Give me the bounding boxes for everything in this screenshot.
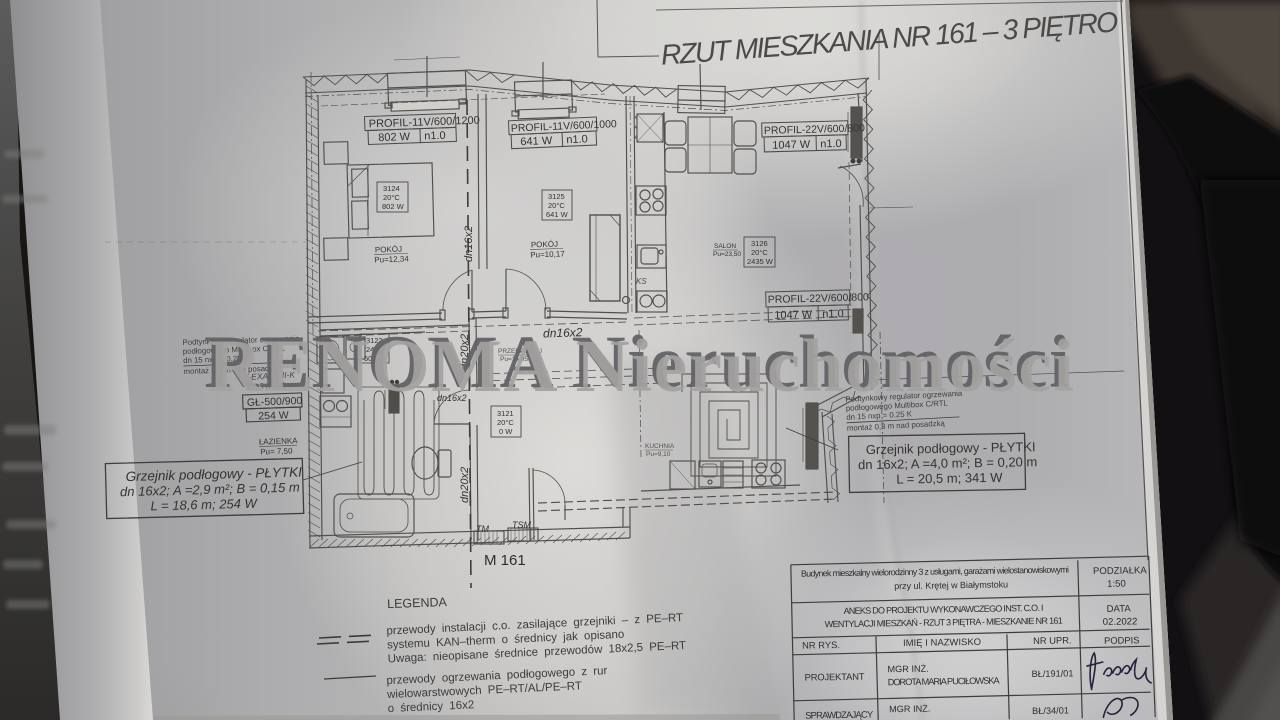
- svg-text:PODZIAŁKA: PODZIAŁKA: [1093, 565, 1148, 577]
- svg-text:DATA: DATA: [1106, 603, 1131, 614]
- svg-text:dn16x2: dn16x2: [463, 226, 475, 262]
- svg-text:M 161: M 161: [484, 552, 526, 569]
- svg-text:KUCHNIA: KUCHNIA: [645, 443, 675, 450]
- svg-text:Pu=9,10: Pu=9,10: [646, 451, 671, 458]
- svg-text:SPRAWDZAJĄCY: SPRAWDZAJĄCY: [805, 709, 874, 720]
- svg-text:1047 W: 1047 W: [774, 309, 813, 322]
- svg-text:3124: 3124: [383, 184, 400, 193]
- svg-text:BŁ/34/01: BŁ/34/01: [1032, 705, 1069, 716]
- svg-text:Pu=23,50: Pu=23,50: [713, 251, 741, 258]
- svg-text:1047 W: 1047 W: [772, 139, 811, 152]
- svg-text:POKÓJ: POKÓJ: [531, 240, 558, 250]
- svg-text:20°C: 20°C: [497, 418, 514, 427]
- svg-text:20°C: 20°C: [751, 248, 768, 257]
- svg-text:802 W: 802 W: [378, 131, 411, 144]
- svg-text:NR UPR.: NR UPR.: [1033, 634, 1072, 646]
- svg-text:RENOMA Nieruchomości: RENOMA Nieruchomości: [208, 325, 1074, 408]
- svg-text:20°C: 20°C: [383, 193, 400, 202]
- svg-text:TM: TM: [476, 524, 489, 534]
- svg-text:0 W: 0 W: [499, 427, 513, 436]
- svg-text:Pu= 7,50: Pu= 7,50: [260, 446, 293, 456]
- svg-text:n1.0: n1.0: [820, 138, 842, 151]
- svg-text:641 W: 641 W: [520, 135, 553, 148]
- svg-text:254 W: 254 W: [258, 409, 289, 422]
- svg-text:BŁ/191/01: BŁ/191/01: [1031, 668, 1073, 679]
- svg-text:2435 W: 2435 W: [747, 257, 774, 266]
- svg-text:DOROTA MARIA PUCIŁOWSKA: DOROTA MARIA PUCIŁOWSKA: [888, 676, 1001, 688]
- svg-text:3126: 3126: [751, 239, 768, 248]
- svg-text:PODPIS: PODPIS: [1104, 634, 1140, 646]
- svg-text:*: *: [634, 114, 638, 124]
- svg-text:802 W: 802 W: [382, 202, 405, 211]
- svg-text:Pu=12,34: Pu=12,34: [374, 254, 409, 264]
- svg-text:dn 16x2; A =4,0 m²; B = 0,20 m: dn 16x2; A =4,0 m²; B = 0,20 m: [858, 454, 1037, 472]
- svg-text:L = 20,5 m; 341 W: L = 20,5 m; 341 W: [896, 470, 1003, 487]
- svg-text:SALON: SALON: [714, 243, 736, 250]
- svg-text:n1.0: n1.0: [424, 130, 446, 143]
- svg-text:MGR INŻ.: MGR INŻ.: [887, 664, 928, 675]
- svg-text:L = 18,6 m; 254 W: L = 18,6 m; 254 W: [150, 496, 258, 514]
- svg-text:dn20x2: dn20x2: [459, 467, 471, 503]
- svg-text:*: *: [634, 134, 638, 144]
- svg-text:ŁAZIENKA: ŁAZIENKA: [259, 436, 299, 446]
- svg-text:NR RYS.: NR RYS.: [802, 639, 840, 651]
- svg-text:przy ul. Krętej w Białymstoku: przy ul. Krętej w Białymstoku: [894, 579, 1008, 591]
- svg-text:1:50: 1:50: [1107, 579, 1126, 590]
- svg-text:KS: KS: [636, 277, 647, 286]
- svg-text:3121: 3121: [497, 409, 514, 418]
- svg-text:Pu=10,17: Pu=10,17: [530, 249, 565, 259]
- svg-text:20°C: 20°C: [548, 201, 565, 210]
- svg-text:641 W: 641 W: [546, 210, 569, 219]
- svg-text:n1.0: n1.0: [822, 308, 844, 321]
- svg-text:n1.0: n1.0: [566, 133, 588, 146]
- svg-text:IMIĘ I NAZWISKO: IMIĘ I NAZWISKO: [903, 636, 981, 648]
- svg-text:02.2022: 02.2022: [1103, 616, 1138, 628]
- svg-text:3125: 3125: [548, 192, 565, 201]
- svg-text:TSM: TSM: [512, 520, 532, 530]
- svg-text:MGR INŻ.: MGR INŻ.: [889, 704, 930, 715]
- svg-text:*: *: [634, 124, 638, 134]
- svg-text:LEGENDA: LEGENDA: [387, 595, 448, 611]
- svg-text:PROJEKTANT: PROJEKTANT: [804, 671, 864, 683]
- svg-text:POKÓJ: POKÓJ: [375, 245, 402, 255]
